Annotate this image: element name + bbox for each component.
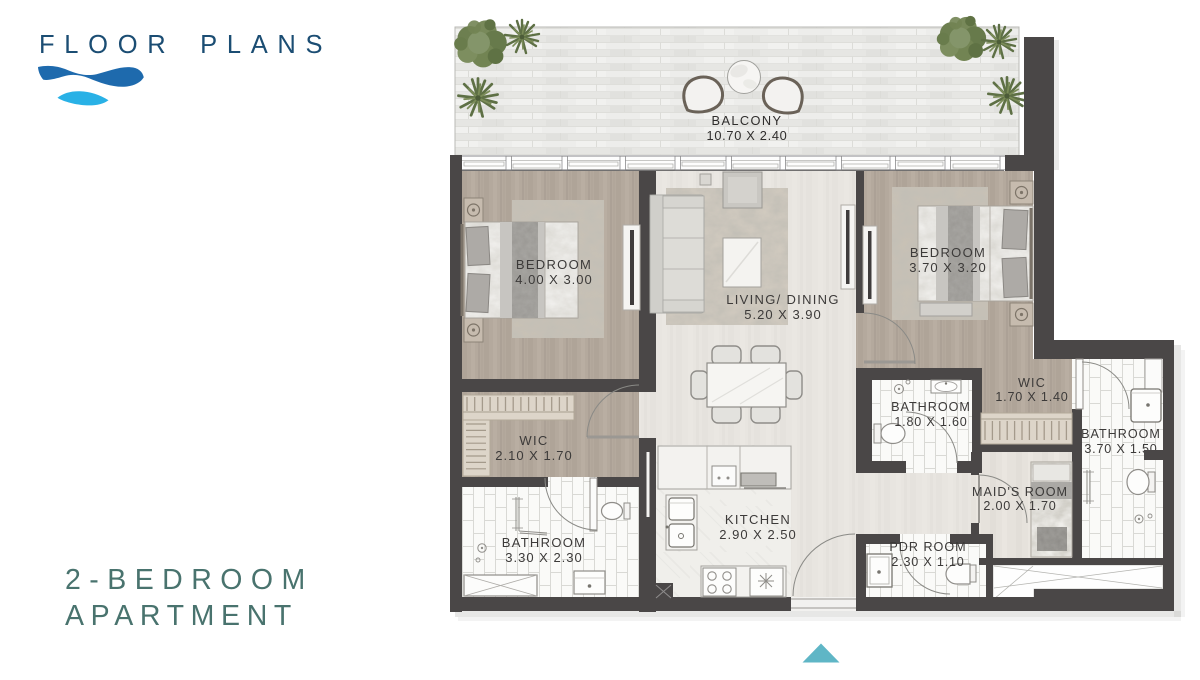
svg-text:2-BEDROOM: 2-BEDROOM	[65, 564, 314, 596]
svg-text:1.70 X 1.40: 1.70 X 1.40	[995, 390, 1068, 404]
svg-text:BATHROOM: BATHROOM	[502, 535, 587, 550]
svg-text:3.70 X 3.20: 3.70 X 3.20	[909, 260, 987, 275]
svg-text:2.30 X 1.10: 2.30 X 1.10	[891, 555, 964, 569]
svg-text:2.90 X 2.50: 2.90 X 2.50	[719, 527, 797, 542]
svg-text:WIC: WIC	[1018, 376, 1046, 390]
svg-text:MAID'S ROOM: MAID'S ROOM	[972, 485, 1068, 499]
svg-text:WIC: WIC	[519, 433, 548, 448]
svg-text:2.10 X 1.70: 2.10 X 1.70	[495, 448, 573, 463]
svg-text:KITCHEN: KITCHEN	[725, 512, 791, 527]
svg-text:APARTMENT: APARTMENT	[65, 600, 298, 632]
svg-text:BEDROOM: BEDROOM	[516, 257, 592, 272]
svg-text:BATHROOM: BATHROOM	[1081, 427, 1161, 441]
svg-text:FLOOR PLANS: FLOOR PLANS	[39, 31, 332, 59]
svg-text:3.30 X 2.30: 3.30 X 2.30	[505, 550, 583, 565]
svg-text:10.70 X 2.40: 10.70 X 2.40	[707, 128, 788, 143]
svg-text:LIVING/ DINING: LIVING/ DINING	[726, 292, 840, 307]
svg-text:BALCONY: BALCONY	[712, 113, 783, 128]
svg-text:1.80 X 1.60: 1.80 X 1.60	[894, 415, 967, 429]
svg-text:PDR ROOM: PDR ROOM	[889, 540, 966, 554]
svg-text:BATHROOM: BATHROOM	[891, 400, 971, 414]
svg-text:4.00 X 3.00: 4.00 X 3.00	[515, 272, 593, 287]
svg-text:BEDROOM: BEDROOM	[910, 245, 986, 260]
svg-text:5.20 X 3.90: 5.20 X 3.90	[744, 307, 822, 322]
svg-text:2.00 X 1.70: 2.00 X 1.70	[983, 499, 1056, 513]
